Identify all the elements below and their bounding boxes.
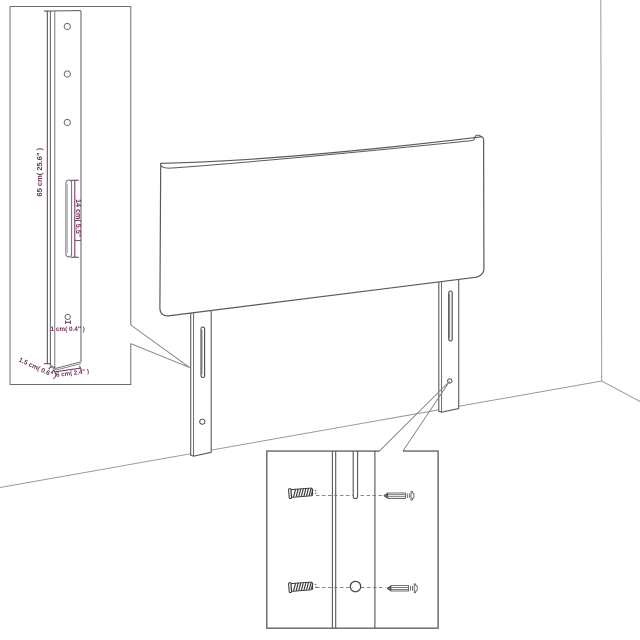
svg-text:1 cm( 0.4" ): 1 cm( 0.4" ) (51, 326, 85, 333)
svg-text:14 cm( 5.5" ): 14 cm( 5.5" ) (74, 199, 83, 242)
svg-text:65 cm( 25.6" ): 65 cm( 25.6" ) (35, 147, 44, 196)
